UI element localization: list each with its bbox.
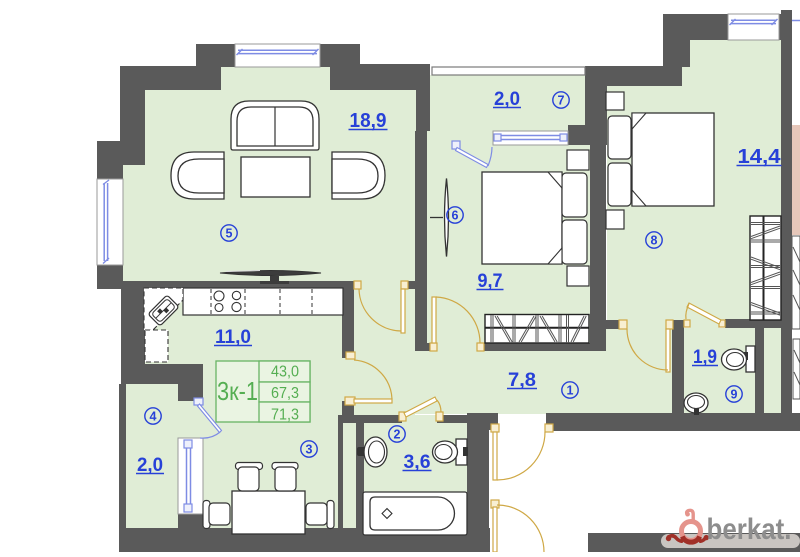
svg-text:1: 1: [567, 383, 574, 397]
svg-text:3: 3: [306, 442, 313, 456]
svg-text:berkat.: berkat.: [707, 513, 792, 546]
svg-text:4: 4: [150, 409, 157, 423]
svg-text:6: 6: [452, 208, 459, 222]
svg-text:9: 9: [731, 387, 738, 401]
svg-text:3к-1: 3к-1: [217, 376, 258, 406]
svg-text:7: 7: [558, 93, 565, 107]
svg-text:8: 8: [651, 233, 658, 247]
svg-text:67,3: 67,3: [271, 385, 299, 402]
svg-text:5: 5: [226, 226, 233, 240]
svg-text:71,3: 71,3: [271, 407, 299, 424]
svg-text:43,0: 43,0: [271, 364, 299, 381]
svg-text:2: 2: [394, 427, 401, 441]
